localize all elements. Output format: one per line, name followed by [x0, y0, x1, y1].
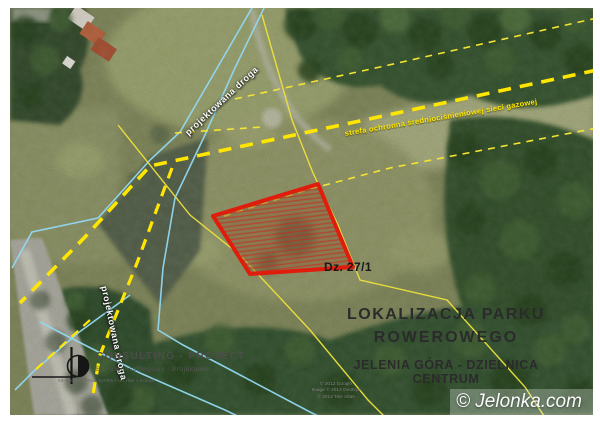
map-title-line2: ROWEROWEGO — [320, 327, 572, 349]
map-page: projektowana droga projektowana droga st… — [0, 0, 600, 422]
watermark-band — [450, 389, 593, 415]
map-title-line1: LOKALIZACJA PARKU — [320, 303, 572, 327]
map-title-block: LOKALIZACJA PARKU ROWEROWEGO JELENIA GÓR… — [320, 303, 572, 386]
map-subtitle: JELENIA GÓRA - DZIELNICA CENTRUM — [320, 358, 572, 386]
